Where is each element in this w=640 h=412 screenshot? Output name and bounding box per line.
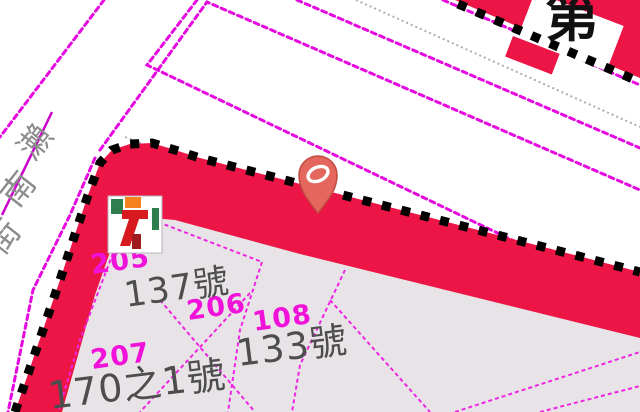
store-icon-green-right (152, 208, 159, 230)
map-viewport[interactable]: 瀨 南 街 第 205 206 108 207 137號 133號 (0, 0, 640, 412)
seven-eleven-icon[interactable] (108, 196, 162, 253)
store-icon-green-left (111, 199, 123, 214)
district-label: 第 (545, 0, 599, 49)
store-icon-orange-top (125, 197, 141, 208)
map-canvas[interactable]: 瀨 南 街 第 205 206 108 207 137號 133號 (0, 0, 640, 412)
store-icon-red-stripe (132, 234, 141, 249)
